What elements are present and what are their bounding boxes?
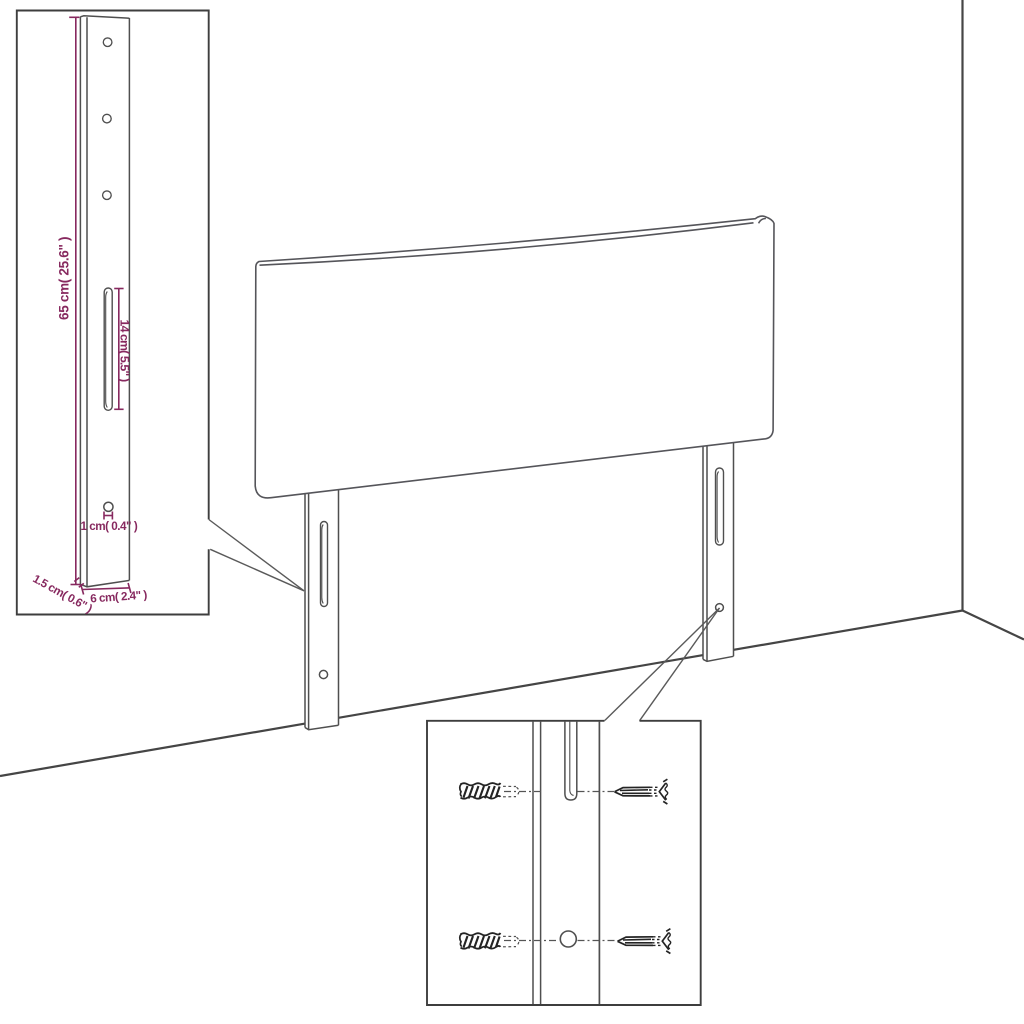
svg-text:14 cm( 5.5" ): 14 cm( 5.5" ) bbox=[117, 320, 131, 382]
svg-text:65 cm( 25.6" ): 65 cm( 25.6" ) bbox=[56, 237, 71, 320]
svg-text:1 cm( 0.4" ): 1 cm( 0.4" ) bbox=[81, 520, 138, 533]
